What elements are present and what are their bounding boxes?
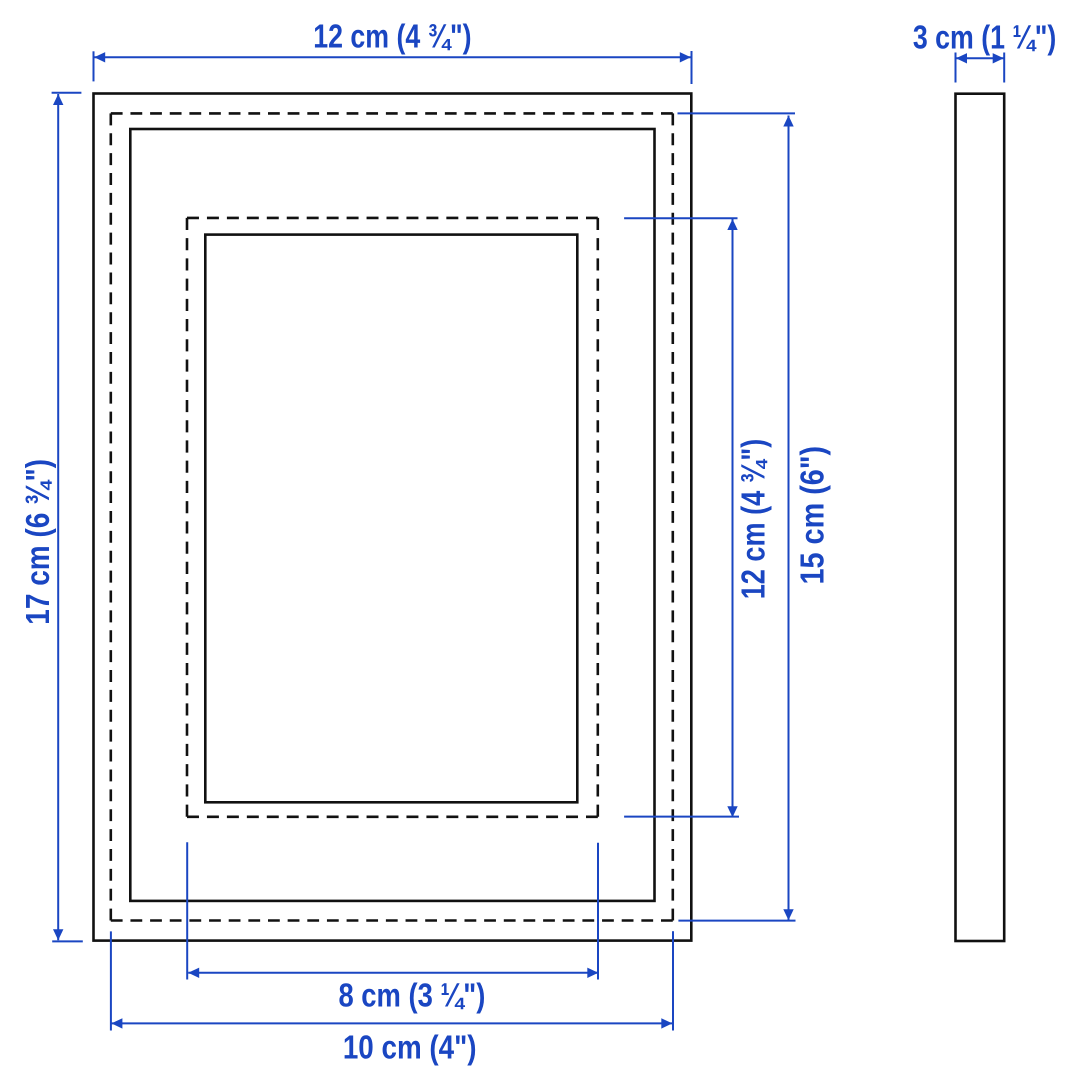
svg-text:12 cm (4 ¾"): 12 cm (4 ¾") [313,18,471,55]
svg-text:17 cm (6 ¾"): 17 cm (6 ¾") [19,459,56,625]
svg-text:3 cm (1 ¼"): 3 cm (1 ¼") [913,18,1056,55]
svg-text:10 cm (4"): 10 cm (4") [343,1028,477,1065]
svg-text:8 cm (3 ¼"): 8 cm (3 ¼") [338,977,485,1014]
svg-text:15 cm (6"): 15 cm (6") [794,446,831,585]
svg-text:12 cm (4 ¾"): 12 cm (4 ¾") [735,439,772,600]
